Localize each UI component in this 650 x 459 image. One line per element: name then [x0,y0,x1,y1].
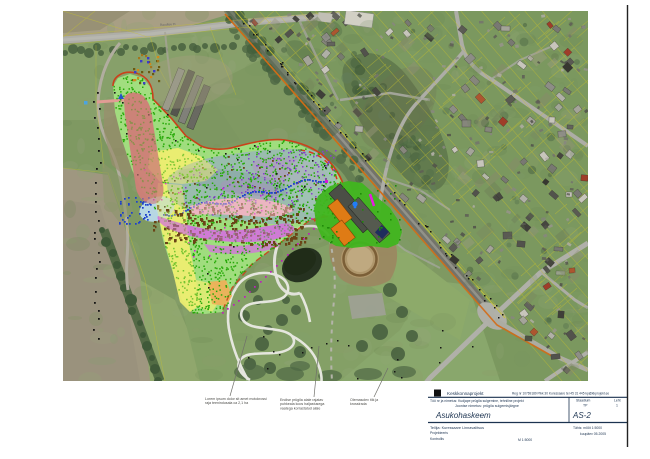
svg-text:Kontrollis: Kontrollis [430,437,444,441]
svg-text:Tähis: mõõt 1:5000: Tähis: mõõt 1:5000 [573,426,602,430]
svg-text:kuupäev 05.2005: kuupäev 05.2005 [580,432,606,436]
svg-text:vaatega korrastatud alale: vaatega korrastatud alale [280,406,320,410]
svg-text:Keskkonnaprojekt: Keskkonnaprojekt [447,391,484,396]
svg-text:Asukohaskeem: Asukohaskeem [435,411,491,420]
svg-text:1: 1 [616,404,618,408]
svg-text:raja teenindusala ca 2,1 ha: raja teenindusala ca 2,1 ha [205,401,248,405]
svg-text:krossirada: krossirada [350,402,367,406]
svg-text:Tellija: Kuressaare Linnavalit: Tellija: Kuressaare Linnavalitsus [430,426,484,430]
svg-text:M 1:5000: M 1:5000 [518,438,532,442]
svg-text:Joonise nimetus: prügila sulg: Joonise nimetus: prügila sulgemisjärgne [455,404,519,408]
svg-text:AS-2: AS-2 [572,411,591,420]
svg-text:Töö nr ja nimetus: Kudjape p: Töö nr ja nimetus: Kudjape prügila sulge… [430,399,524,403]
svg-text:Leht: Leht [614,399,621,403]
svg-text:TP: TP [583,404,588,408]
svg-text:Projekteeris: Projekteeris [430,431,448,435]
svg-text:Staadium: Staadium [576,399,590,403]
svg-text:Reg nr 10769189 Pikk 30 Kures: Reg nr 10769189 Pikk 30 Kuressaare tel 4… [512,392,609,396]
